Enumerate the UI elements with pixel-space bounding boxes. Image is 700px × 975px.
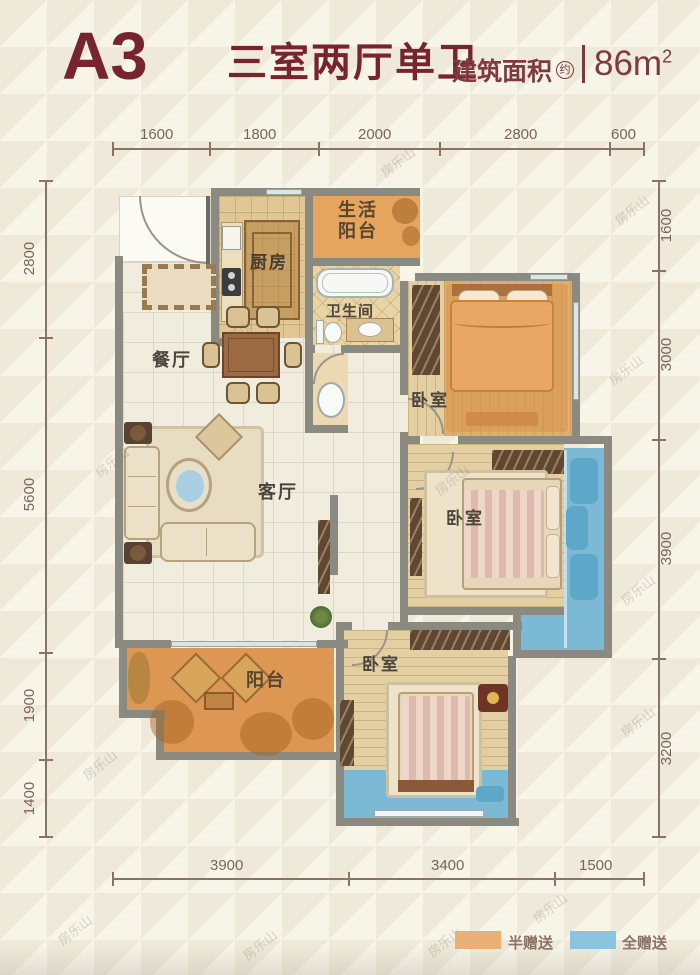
- dim-left-2: 5600: [21, 478, 38, 511]
- kitchen-window: [266, 189, 302, 195]
- loveseat: [160, 522, 256, 562]
- wardrobe: [410, 630, 510, 650]
- balcony-plant: [240, 712, 292, 756]
- watermark: 房乐山: [604, 350, 646, 389]
- dim-right-1: 1600: [658, 209, 675, 242]
- dim-line-bottom: [112, 878, 645, 880]
- wall: [604, 443, 612, 658]
- dim-right-2: 3000: [658, 338, 675, 371]
- coffee-table-glass: [176, 470, 204, 502]
- watermark: 房乐山: [53, 910, 95, 949]
- watermark: 房乐山: [528, 888, 570, 927]
- dim-bottom-2: 3400: [431, 857, 464, 874]
- bay-sill: [564, 450, 567, 648]
- tv-cabinet: [318, 520, 330, 594]
- label-life-balcony-line1: 生活: [338, 200, 378, 221]
- area-label: 建筑面积: [452, 52, 552, 88]
- wall: [336, 818, 519, 826]
- bedroom1-top-window: [530, 274, 568, 280]
- bed3-headboard: [398, 780, 474, 792]
- dim-top-3: 2000: [358, 126, 391, 143]
- cooktop-burner: [228, 272, 235, 279]
- wall: [388, 622, 522, 630]
- label-kitchen: 厨房: [250, 248, 288, 273]
- fridge: [222, 226, 241, 250]
- sofa: [124, 446, 160, 540]
- sliding-door-window: [171, 641, 317, 647]
- wall: [400, 281, 408, 395]
- bottom-wash: [0, 945, 700, 975]
- bed2-pillow: [546, 534, 560, 578]
- dim-left-3: 1900: [21, 689, 38, 722]
- watermark: 房乐山: [78, 745, 120, 784]
- bay-seat: [566, 506, 588, 550]
- balcony-table: [204, 692, 234, 710]
- sofa-cushion-line: [128, 476, 156, 477]
- dim-right-4: 3200: [658, 732, 675, 765]
- wall: [513, 650, 612, 658]
- bed1-bench: [466, 412, 538, 426]
- vanity-sink: [358, 322, 382, 337]
- wall: [211, 188, 420, 196]
- wardrobe: [412, 285, 440, 375]
- area-approx-badge: 约: [556, 61, 574, 79]
- wall: [400, 432, 408, 444]
- bay-seat: [570, 458, 598, 504]
- bed3-duvet: [402, 696, 470, 780]
- bathtub-inner: [322, 273, 388, 293]
- label-bedroom-2: 卧室: [446, 504, 484, 529]
- wall: [458, 436, 612, 444]
- dining-chair: [226, 382, 250, 404]
- life-balcony-plant: [402, 226, 420, 246]
- baywindow-notch-fullgift: [521, 615, 564, 650]
- wall: [400, 444, 408, 622]
- wardrobe: [340, 700, 354, 766]
- floorplan-page: A3 三室两厅单卫 建筑面积 约 86m2 1600 1800 2000 280…: [0, 0, 700, 975]
- watermark: 房乐山: [616, 570, 658, 609]
- wall: [119, 648, 127, 718]
- wall: [156, 752, 342, 760]
- cooktop-burner: [228, 284, 235, 291]
- bay-seat: [570, 554, 598, 600]
- dim-top-5: 600: [611, 126, 636, 143]
- wall: [305, 352, 313, 432]
- bed2-pillow: [546, 486, 560, 530]
- wall: [341, 345, 406, 353]
- toilet-tank: [316, 320, 324, 344]
- label-balcony: 阳台: [246, 666, 286, 692]
- bay-seat: [476, 786, 504, 802]
- toilet-bowl: [324, 322, 342, 343]
- bed1-duvet: [450, 300, 554, 392]
- dim-line-top: [112, 148, 645, 150]
- watermark: 房乐山: [610, 190, 652, 229]
- label-living: 客厅: [258, 478, 298, 504]
- label-life-balcony-line2: 阳台: [338, 221, 378, 242]
- watermark: 房乐山: [616, 702, 658, 741]
- label-life-balcony: 生活 阳台: [338, 200, 378, 242]
- dining-chair: [256, 306, 280, 328]
- wall: [408, 607, 564, 615]
- label-bedroom-1: 卧室: [411, 386, 449, 411]
- wall: [508, 656, 516, 826]
- wall: [330, 495, 338, 575]
- life-balcony-plant: [392, 198, 418, 224]
- dining-chair: [284, 342, 302, 368]
- area-value: 86m2: [594, 44, 672, 84]
- page-title: A3: [62, 18, 148, 95]
- dim-bottom-1: 3900: [210, 857, 243, 874]
- pedestal-basin: [317, 382, 345, 418]
- dim-top-1: 1600: [140, 126, 173, 143]
- sofa-cushion-line: [128, 506, 156, 507]
- label-bathroom: 卫生间: [326, 300, 374, 321]
- side-plant: [130, 545, 146, 561]
- entry-door-leaf: [206, 196, 210, 264]
- label-dining: 餐厅: [152, 346, 192, 372]
- bedroom1-right-window: [573, 302, 579, 400]
- nightstand-lamp: [487, 692, 499, 704]
- bay-sill-bottom: [374, 810, 484, 817]
- dim-top-4: 2800: [504, 126, 537, 143]
- wall: [305, 196, 313, 352]
- layout-name: 三室两厅单卫: [227, 30, 479, 88]
- bed1-fold-line: [454, 318, 550, 328]
- wall: [305, 425, 348, 433]
- loveseat-cushion-line: [206, 528, 207, 556]
- dim-right-3: 3900: [658, 532, 675, 565]
- dim-top-2: 1800: [243, 126, 276, 143]
- label-bedroom-3: 卧室: [362, 650, 400, 675]
- balcony-plant: [150, 700, 194, 744]
- dim-left-1: 2800: [21, 242, 38, 275]
- wall: [305, 258, 420, 266]
- dim-line-left: [45, 180, 47, 838]
- wall: [513, 615, 521, 650]
- tv-cabinet: [410, 498, 422, 576]
- title-divider: [582, 45, 585, 83]
- side-plant: [130, 425, 146, 441]
- floor-plant: [310, 606, 332, 628]
- balcony-plant: [128, 652, 150, 704]
- dim-bottom-3: 1500: [579, 857, 612, 874]
- dining-chair: [202, 342, 220, 368]
- wall: [119, 640, 171, 648]
- dining-chair: [256, 382, 280, 404]
- entry-mat: [142, 264, 216, 310]
- dim-left-4: 1400: [21, 782, 38, 815]
- balcony-plant: [292, 698, 334, 740]
